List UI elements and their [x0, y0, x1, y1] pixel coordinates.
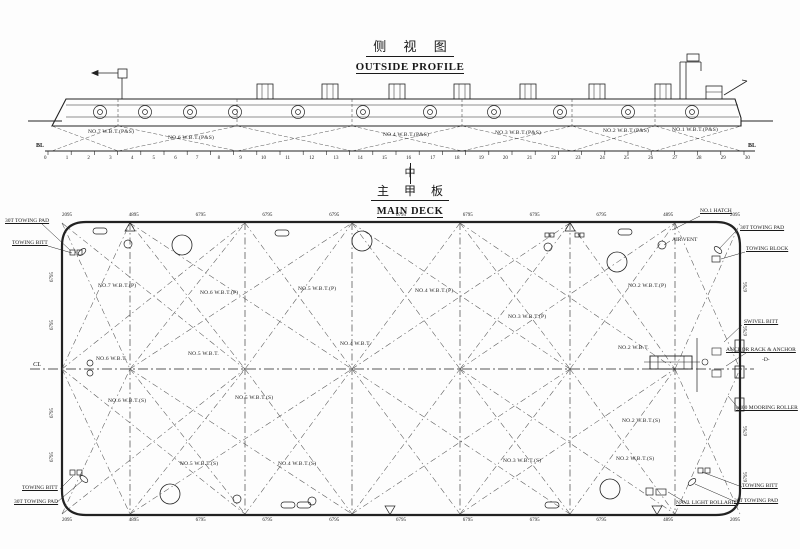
frame-number: 3 — [109, 156, 112, 161]
frame-number: 16 — [406, 156, 411, 161]
deck-tank-label: NO.2 W.B.T.(P) — [628, 284, 666, 290]
deck-diagonal-web — [62, 223, 740, 514]
dimension-value: 6795 — [262, 213, 272, 218]
deck-manhole-icons — [160, 231, 627, 504]
frame-number: 13 — [333, 156, 338, 161]
profile-tank-label: NO.6 W.B.T.(P&S) — [168, 136, 214, 142]
deck-dims-top: 2095489567956795679567956795679567954895… — [62, 213, 740, 218]
profile-tank-label: NO.2 W.B.T.(P&S) — [603, 129, 649, 135]
deck-tank-label: NO.3 W.B.T.(S) — [503, 459, 541, 465]
centerline-symbol-line — [410, 163, 411, 184]
dimension-value: 4895 — [129, 518, 139, 523]
frame-number: 15 — [382, 156, 387, 161]
dimension-value: 4895 — [129, 213, 139, 218]
profile-tank-label: NO.4 W.B.T.(P&S) — [383, 133, 429, 139]
profile-mast-icon — [92, 69, 127, 99]
deck-title-block: 中 主 甲 板 MAIN DECK — [330, 163, 490, 219]
frame-number: 9 — [239, 156, 242, 161]
frame-number: 12 — [309, 156, 314, 161]
frame-number: 19 — [479, 156, 484, 161]
deck-callout-label: TOWING BITT — [22, 486, 58, 492]
deck-callout-label: 30T TOWING PAD — [734, 499, 778, 505]
dimension-value: 2095 — [730, 518, 740, 523]
profile-tank-label: NO.1 W.B.T.(P&S) — [672, 128, 718, 134]
deck-bulkhead-lines — [130, 223, 675, 514]
frame-number: 7 — [196, 156, 199, 161]
deck-tank-label: NO.5 W.B.T.(S) — [235, 396, 273, 402]
deck-bitt-icons — [70, 233, 720, 475]
frame-number: 20 — [503, 156, 508, 161]
deck-callout-label: φ400 MOORING ROLLER — [736, 406, 798, 412]
frame-number: 21 — [527, 156, 532, 161]
deck-note-label: AIR VENT — [672, 238, 697, 244]
deck-tank-label: NO.4 W.B.T.(P) — [415, 289, 453, 295]
deck-callout-label: NAVI. LIGHT BOLLARD — [676, 501, 736, 507]
dimension-value: 6795 — [463, 213, 473, 218]
centerline-label: CL — [33, 362, 41, 369]
deck-callout-label: TOWING BITT — [12, 241, 48, 247]
baseline-label-right: BL — [748, 143, 756, 149]
dimension-value: 4895 — [663, 518, 673, 523]
frame-number: 2 — [87, 156, 90, 161]
frame-number: 28 — [697, 156, 702, 161]
deck-tank-label: NO.7 W.B.T.(P) — [98, 284, 136, 290]
baseline-label-left: BL — [36, 143, 44, 149]
frame-number: 0 — [44, 156, 47, 161]
frame-number: 30 — [745, 156, 750, 161]
deck-callout-label: ANCHOR RACK & ANCHOR — [726, 348, 796, 354]
profile-title-block: 侧 视 图 OUTSIDE PROFILE — [330, 36, 490, 75]
linework-layer — [0, 0, 800, 549]
profile-title-zh: 侧 视 图 — [366, 36, 454, 57]
dimension-value-vertical: 6795 — [744, 472, 749, 482]
deck-title-zh: 主 甲 板 — [371, 182, 449, 201]
frame-number: 23 — [576, 156, 581, 161]
deck-callout-label: 30T TOWING PAD — [740, 226, 784, 232]
deck-windlass-icon — [644, 338, 721, 392]
frame-number: 25 — [624, 156, 629, 161]
deck-callout-label: 30T TOWING PAD — [14, 500, 58, 506]
dimension-value: 2095 — [62, 213, 72, 218]
dimension-value: 6795 — [329, 213, 339, 218]
deck-tank-label: NO.2 W.B.T. — [618, 346, 649, 352]
frame-number: 17 — [430, 156, 435, 161]
deck-tank-label: NO.6 W.B.T.(S) — [108, 399, 146, 405]
deck-navlight-icon — [646, 488, 666, 495]
dimension-value-vertical: 6795 — [50, 320, 55, 330]
frame-number: 1 — [66, 156, 69, 161]
dimension-value-vertical: 6795 — [744, 282, 749, 292]
dimension-value: 6795 — [596, 518, 606, 523]
frame-number: 29 — [721, 156, 726, 161]
dimension-value-vertical: 6795 — [744, 326, 749, 336]
deck-tank-label: NO.5 W.B.T.(P) — [298, 287, 336, 293]
deck-triangle-icons — [125, 223, 662, 515]
frame-number: 24 — [600, 156, 605, 161]
profile-title-en: OUTSIDE PROFILE — [356, 61, 465, 74]
frame-number: 14 — [358, 156, 363, 161]
dimension-value: 6795 — [530, 213, 540, 218]
dimension-value: 6795 — [396, 213, 406, 218]
centerline-symbol-icon: 中 — [405, 165, 416, 182]
profile-tank-label: NO.7 W.B.T.(P&S) — [88, 130, 134, 136]
profile-bow-structures — [680, 54, 747, 99]
deck-tank-label: NO.4 W.B.T.(S) — [278, 462, 316, 468]
dimension-value: 6795 — [596, 213, 606, 218]
profile-hull — [28, 99, 773, 126]
deck-callout-label: TOWING BLOCK — [746, 247, 788, 253]
dimension-value: 6795 — [463, 518, 473, 523]
frame-number: 4 — [131, 156, 134, 161]
deck-callout-label: TOWING BITT — [742, 484, 778, 490]
frame-number: 5 — [153, 156, 156, 161]
deck-tank-label: NO.4 W.B.T. — [340, 342, 371, 348]
profile-frame-numbers: 0123456789101112131415161718192021222324… — [44, 156, 750, 161]
profile-deck-bitt-icons — [257, 84, 671, 99]
deck-tank-label: NO.2 W.B.T.(S) — [616, 457, 654, 463]
dimension-value: 6795 — [196, 518, 206, 523]
dimension-value: 6795 — [530, 518, 540, 523]
deck-tank-label: NO.2 W.B.T.(S) — [622, 419, 660, 425]
deck-note-label: -D- — [762, 358, 770, 364]
profile-tank-label: NO.3 W.B.T.(P&S) — [495, 131, 541, 137]
frame-number: 22 — [551, 156, 556, 161]
profile-frame-scale — [45, 151, 755, 155]
frame-number: 11 — [285, 156, 290, 161]
deck-tank-label: NO.5 W.B.T. — [188, 352, 219, 358]
frame-number: 26 — [648, 156, 653, 161]
deck-tank-label: NO.5 W.B.T.(S) — [180, 462, 218, 468]
deck-towing-pad-icons — [77, 245, 723, 487]
frame-number: 27 — [672, 156, 677, 161]
deck-tank-label: NO.6 W.B.T.(P) — [200, 291, 238, 297]
deck-callout-label: SWIVEL BITT — [744, 320, 778, 326]
dimension-value: 6795 — [262, 518, 272, 523]
frame-number: 8 — [218, 156, 221, 161]
frame-number: 18 — [454, 156, 459, 161]
deck-tank-label: NO.3 W.B.T.(P) — [508, 315, 546, 321]
deck-dims-bottom: 2095489567956795679567956795679567954895… — [62, 518, 740, 523]
dimension-value: 2095 — [62, 518, 72, 523]
frame-number: 10 — [261, 156, 266, 161]
dimension-value: 6795 — [329, 518, 339, 523]
frame-number: 6 — [174, 156, 177, 161]
dimension-value: 4895 — [663, 213, 673, 218]
deck-callout-label: NO.1 HATCH — [700, 209, 732, 215]
deck-cleat-icons — [93, 228, 632, 508]
dimension-value-vertical: 6795 — [50, 408, 55, 418]
profile-bollard-icons — [94, 106, 699, 119]
deck-air-vent-icons — [87, 240, 666, 505]
dimension-value: 6795 — [396, 518, 406, 523]
dimension-value-vertical: 6795 — [744, 426, 749, 436]
profile-bulkhead-lines — [118, 99, 655, 126]
deck-callout-label: 30T TOWING PAD — [5, 219, 49, 225]
dimension-value-vertical: 6795 — [50, 452, 55, 462]
deck-tank-label: NO.6 W.B.T. — [96, 357, 127, 363]
dimension-value: 6795 — [196, 213, 206, 218]
drawing-sheet: 侧 视 图 OUTSIDE PROFILE 中 主 甲 板 MAIN DECK … — [0, 0, 800, 549]
dimension-value-vertical: 6795 — [50, 272, 55, 282]
